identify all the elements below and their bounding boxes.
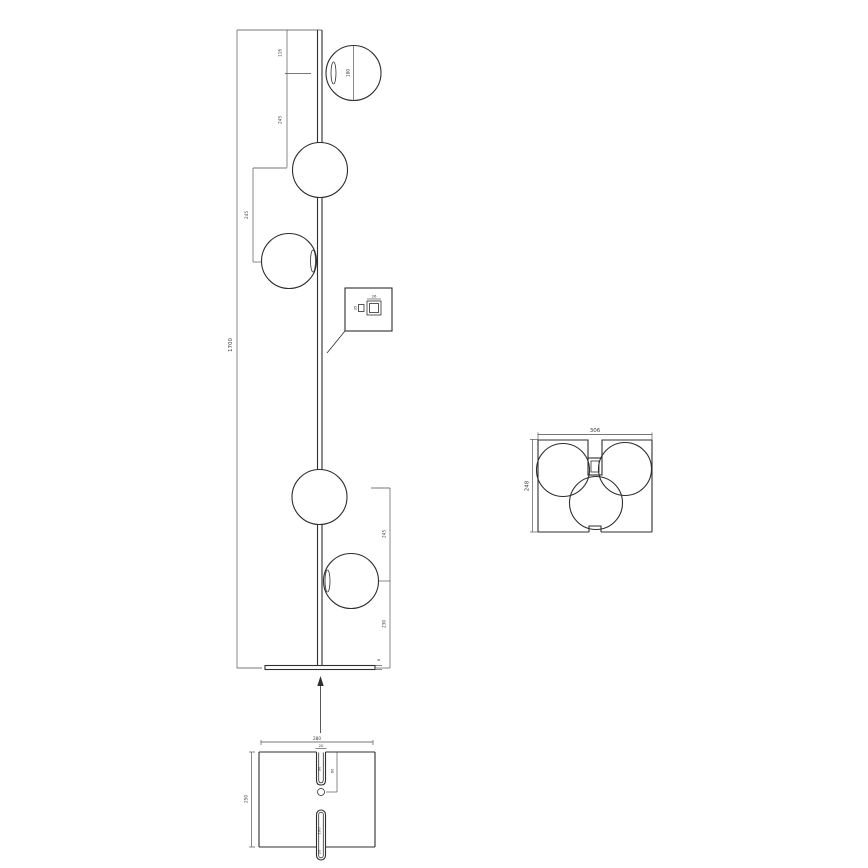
globe-5-socket <box>325 570 330 592</box>
globe-3-socket <box>311 250 316 272</box>
switch-width-label: 26 <box>372 294 377 299</box>
globe5-to-base-label: 230 <box>382 620 387 628</box>
top-view-globe-left <box>537 444 590 497</box>
dim-overall-height: 1700 <box>228 30 262 668</box>
arrow-head <box>317 676 323 686</box>
switch-detail: 26 35 <box>327 288 392 353</box>
overall-height-label: 1700 <box>228 338 234 352</box>
drawing-canvas: 1700 116 245 245 180 <box>0 0 868 868</box>
lamp-dimension-drawing: 1700 116 245 245 180 <box>0 0 868 868</box>
base-detail-view: 280 20 90 80 <box>244 736 376 860</box>
top-view-globe-front <box>570 477 623 530</box>
top-view: 306 248 <box>525 428 653 532</box>
base-mounting-hole: 80 <box>318 752 338 796</box>
switch-leader-line <box>327 331 345 353</box>
base-depth-label: 250 <box>244 795 249 803</box>
base-thickness-label: 8 <box>376 658 381 661</box>
globe2-to-globe3-label: 245 <box>244 211 249 219</box>
hole-offset-label: 80 <box>330 768 335 773</box>
dim-base-width: 280 <box>261 736 373 745</box>
switch-height-label: 35 <box>353 305 358 310</box>
slot-length-label: 90 <box>317 766 322 771</box>
assembly-arrow <box>317 676 323 733</box>
top-view-frame <box>538 440 652 532</box>
globe-3 <box>262 234 317 289</box>
top-to-globe1-label: 116 <box>278 49 283 57</box>
lamp-pole <box>318 30 323 666</box>
dim-top-view-width: 306 <box>538 428 652 440</box>
base-upper-slot: 90 <box>317 752 326 785</box>
globe-diameter-label: 180 <box>346 69 351 77</box>
top-view-depth-label: 248 <box>525 480 531 491</box>
top-view-globe-right <box>599 443 652 496</box>
globe1-to-globe2-label: 245 <box>278 116 283 124</box>
top-view-width-label: 306 <box>590 428 601 434</box>
slot-width-label: 20 <box>319 743 324 748</box>
dim-top-view-depth: 248 <box>525 440 539 533</box>
front-view: 1700 116 245 245 180 <box>228 30 390 733</box>
dim-base-depth: 250 <box>244 752 256 847</box>
globe-5 <box>324 554 379 609</box>
bottom-slot-length-label: 100 <box>317 827 322 835</box>
globe-2 <box>293 143 348 198</box>
globe4-to-globe5-label: 245 <box>382 530 387 538</box>
base-plate: 8 <box>265 658 382 669</box>
base-width-label: 280 <box>313 736 321 741</box>
globe-1: 180 <box>326 46 381 101</box>
globe-1-socket <box>331 62 336 84</box>
pole-cross-section-inner <box>591 461 599 472</box>
globe-4 <box>292 470 347 525</box>
dim-slot-width: 20 <box>316 743 327 749</box>
base-lower-slot: 100 20 <box>317 810 326 860</box>
bottom-slot-width-label: 20 <box>317 849 322 854</box>
